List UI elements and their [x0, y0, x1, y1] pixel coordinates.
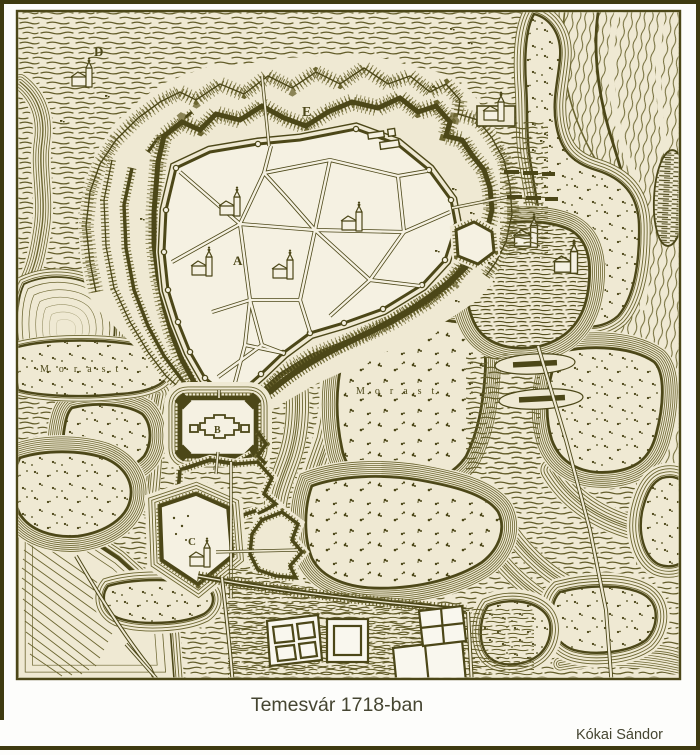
svg-text:E: E: [302, 105, 311, 120]
svg-text:B: B: [214, 425, 221, 436]
svg-text:Temesvár 1718-ban: Temesvár 1718-ban: [251, 694, 423, 716]
svg-text:D: D: [94, 44, 103, 59]
svg-text:Morast: Morast: [356, 386, 444, 397]
svg-text:A: A: [233, 253, 243, 268]
svg-text:C: C: [188, 536, 196, 548]
svg-text:Morast: Morast: [40, 364, 128, 375]
svg-text:F: F: [259, 438, 266, 450]
svg-text:Kókai Sándor: Kókai Sándor: [576, 727, 663, 743]
